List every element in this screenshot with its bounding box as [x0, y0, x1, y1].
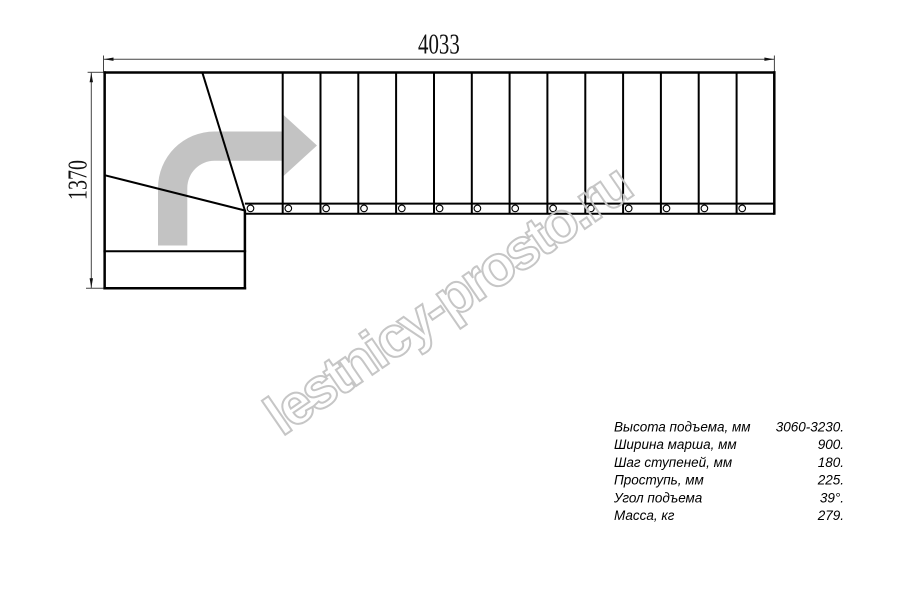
svg-text:lestnicy-prosto.ru: lestnicy-prosto.ru	[253, 153, 642, 448]
svg-text:279.: 279.	[817, 508, 844, 523]
svg-text:Высота подъема, мм: Высота подъема, мм	[614, 420, 750, 435]
svg-text:3060-3230.: 3060-3230.	[776, 420, 844, 435]
svg-text:Угол подъема: Угол подъема	[613, 490, 703, 505]
svg-text:4033: 4033	[418, 28, 460, 60]
svg-text:39°.: 39°.	[820, 490, 844, 505]
svg-text:180.: 180.	[818, 455, 844, 470]
svg-text:Шаг ступеней, мм: Шаг ступеней, мм	[614, 455, 732, 470]
svg-text:Масса, кг: Масса, кг	[614, 508, 675, 523]
svg-text:Ширина марша, мм: Ширина марша, мм	[614, 437, 737, 452]
svg-text:225.: 225.	[817, 473, 844, 488]
svg-text:1370: 1370	[64, 160, 94, 200]
svg-text:900.: 900.	[818, 437, 844, 452]
svg-text:Проступь, мм: Проступь, мм	[614, 473, 704, 488]
